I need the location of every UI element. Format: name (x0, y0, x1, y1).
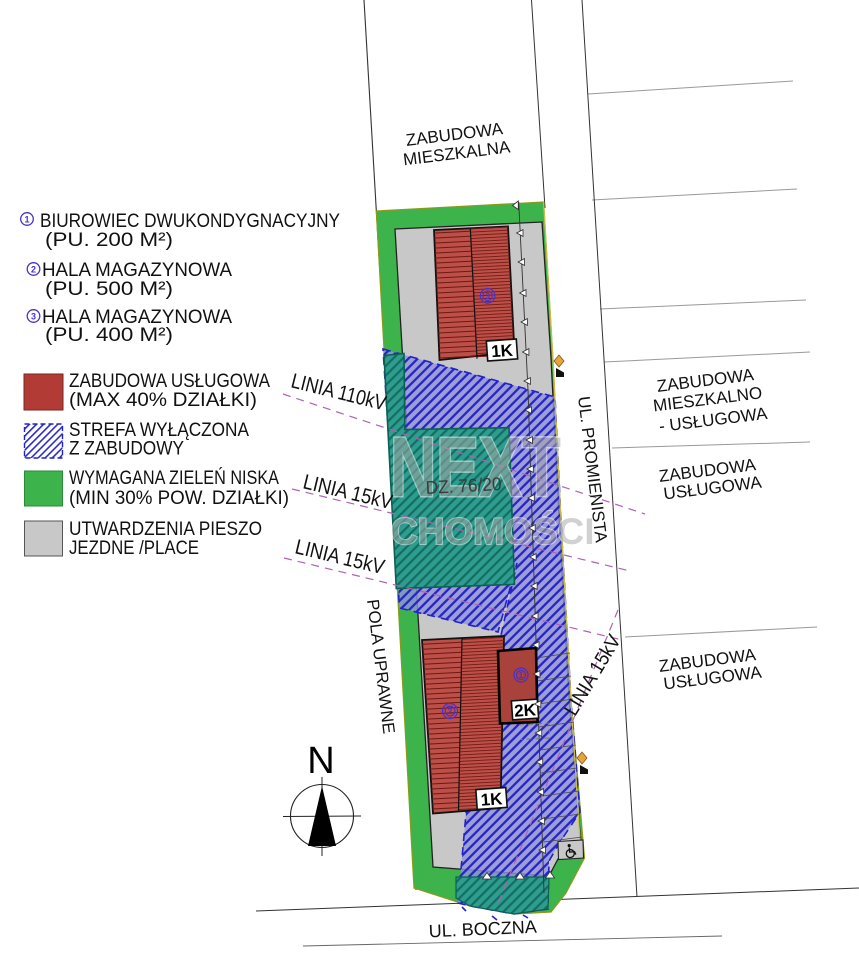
svg-text:(PU. 400 M²): (PU. 400 M²) (45, 325, 173, 346)
svg-text:HALA MAGAZYNOWA: HALA MAGAZYNOWA (42, 260, 232, 281)
svg-text:BIUROWIEC DWUKONDYGNACYJNY: BIUROWIEC DWUKONDYGNACYJNY (40, 211, 340, 232)
svg-text:DZ. 76/20: DZ. 76/20 (425, 473, 502, 498)
svg-text:ZABUDOWA USŁUGOWA: ZABUDOWA USŁUGOWA (69, 371, 270, 392)
svg-text:1: 1 (24, 215, 29, 225)
svg-text:2: 2 (448, 706, 453, 716)
svg-text:(PU. 200 M²): (PU. 200 M²) (45, 230, 173, 251)
svg-text:3: 3 (485, 291, 490, 301)
svg-text:1K: 1K (480, 789, 504, 810)
svg-text:1: 1 (519, 670, 524, 680)
svg-text:1K: 1K (491, 341, 515, 362)
svg-text:(MAX 40% DZIAŁKI): (MAX 40% DZIAŁKI) (69, 390, 257, 411)
svg-text:NEXT: NEXT (390, 420, 561, 514)
svg-text:(MIN 30% POW. DZIAŁKI): (MIN 30% POW. DZIAŁKI) (69, 488, 289, 509)
svg-text:(PU. 500 M²): (PU. 500 M²) (45, 279, 173, 300)
svg-text:CHOMOŚCI: CHOMOŚCI (391, 510, 595, 552)
svg-text:WYMAGANA ZIELEŃ NISKA: WYMAGANA ZIELEŃ NISKA (69, 468, 279, 489)
svg-text:3: 3 (31, 312, 36, 322)
svg-text:UTWARDZENIA PIESZO: UTWARDZENIA PIESZO (69, 519, 262, 540)
svg-text:JEZDNE /PLACE: JEZDNE /PLACE (69, 538, 199, 559)
svg-text:2K: 2K (514, 700, 538, 721)
svg-text:2: 2 (31, 265, 36, 275)
svg-text:Z ZABUDOWY: Z ZABUDOWY (69, 439, 184, 460)
svg-text:N: N (307, 740, 334, 782)
